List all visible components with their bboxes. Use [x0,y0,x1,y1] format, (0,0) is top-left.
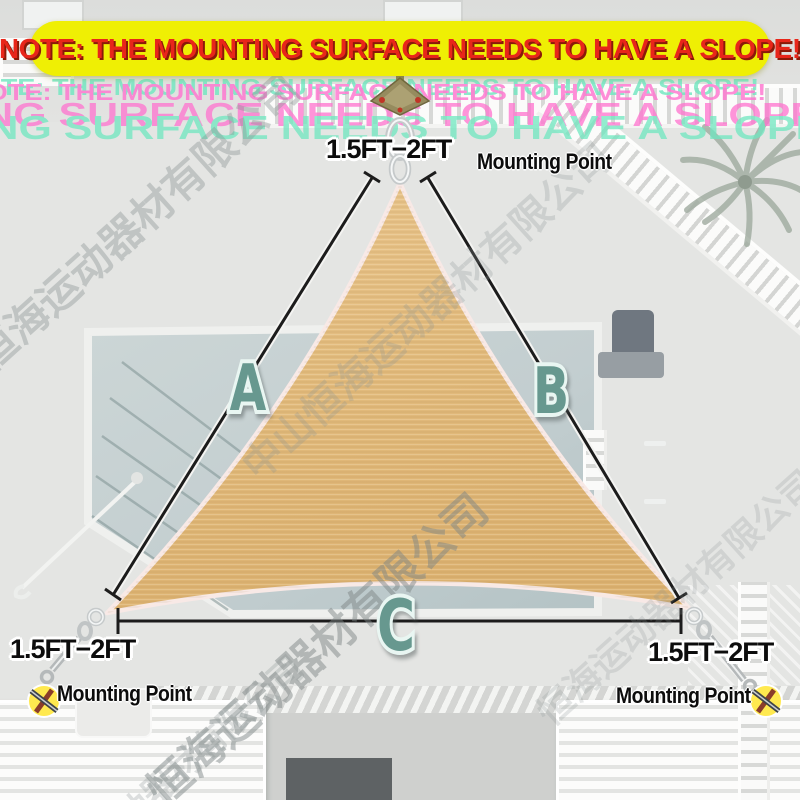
distance-label-right: 1.5FT−2FT [648,637,773,668]
anchor-bolt-icon-left [28,685,60,717]
anchor-bolt-icon-right [750,685,782,717]
mounting-point-label-top: Mounting Point [477,149,612,175]
distance-label-left: 1.5FT−2FT [10,634,135,665]
shade-sail [107,183,689,613]
side-label-a: A A [221,352,274,436]
mounting-point-label-right: Mounting Point [616,683,751,709]
mounting-point-label-left: Mounting Point [57,681,192,707]
shade-sail-diagram [0,0,800,800]
note-banner-text: NOTE: THE MOUNTING SURFACE NEEDS TO HAVE… [0,33,800,65]
distance-label-top: 1.5FT−2FT [326,134,451,165]
note-banner: NOTE: THE MOUNTING SURFACE NEEDS TO HAVE… [30,21,770,76]
product-diagram-image: NOTE: THE MOUNTING SURFACE NEEDS TO HAVE… [0,0,800,800]
side-label-c: C C [369,585,422,669]
side-label-b: B B [524,355,577,439]
